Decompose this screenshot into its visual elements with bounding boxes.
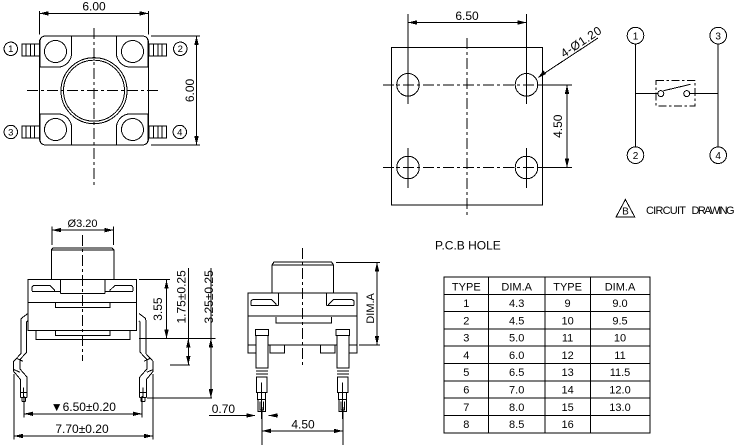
svg-text:2: 2 [178, 44, 183, 55]
svg-text:11.5: 11.5 [610, 367, 631, 379]
svg-text:8: 8 [463, 419, 469, 431]
svg-text:DIM.A: DIM.A [501, 282, 532, 294]
svg-text:7: 7 [463, 402, 469, 414]
svg-text:Ø3.20: Ø3.20 [68, 218, 98, 230]
svg-text:4.5: 4.5 [509, 316, 524, 328]
svg-text:3.25±0.25: 3.25±0.25 [202, 270, 216, 324]
svg-text:4.3: 4.3 [509, 298, 524, 310]
svg-text:12.0: 12.0 [609, 385, 630, 397]
svg-text:6.00: 6.00 [183, 78, 197, 102]
svg-text:3: 3 [463, 333, 469, 345]
svg-text:3: 3 [8, 127, 13, 138]
svg-text:4: 4 [715, 151, 721, 162]
svg-text:▼6.50±0.20: ▼6.50±0.20 [51, 400, 117, 414]
svg-text:5.0: 5.0 [509, 333, 524, 345]
svg-text:4-Ø1.20: 4-Ø1.20 [558, 23, 604, 60]
svg-text:10: 10 [614, 333, 626, 345]
svg-text:7.0: 7.0 [509, 385, 524, 397]
svg-text:2: 2 [633, 151, 639, 162]
svg-text:7.70±0.20: 7.70±0.20 [55, 422, 109, 436]
svg-text:1: 1 [8, 44, 13, 55]
svg-text:4: 4 [463, 350, 469, 362]
svg-text:13: 13 [561, 367, 573, 379]
svg-text:DIM.A: DIM.A [365, 292, 377, 323]
svg-text:1: 1 [463, 298, 469, 310]
svg-text:6.0: 6.0 [509, 350, 524, 362]
svg-text:6: 6 [463, 385, 469, 397]
svg-text:9.5: 9.5 [612, 316, 627, 328]
svg-text:TYPE: TYPE [553, 282, 582, 294]
svg-text:9: 9 [565, 298, 571, 310]
svg-text:14: 14 [561, 385, 573, 397]
svg-text:B: B [622, 207, 629, 218]
svg-text:11: 11 [614, 350, 625, 362]
svg-text:6.5: 6.5 [509, 367, 524, 379]
svg-text:4.50: 4.50 [551, 114, 565, 138]
svg-text:12: 12 [561, 350, 573, 362]
svg-text:8.0: 8.0 [509, 402, 524, 414]
svg-text:9.0: 9.0 [612, 298, 627, 310]
svg-text:3: 3 [715, 31, 721, 42]
svg-text:3.55: 3.55 [151, 297, 165, 321]
svg-text:1.75±0.25: 1.75±0.25 [174, 270, 188, 324]
svg-text:4.50: 4.50 [291, 418, 315, 432]
svg-text:TYPE: TYPE [452, 282, 481, 294]
svg-text:DRAWING: DRAWING [692, 205, 735, 217]
svg-text:4: 4 [177, 127, 182, 138]
svg-text:16: 16 [561, 419, 573, 431]
svg-text:P.C.B HOLE: P.C.B HOLE [435, 239, 501, 253]
svg-text:11: 11 [562, 333, 573, 345]
svg-text:CIRCUIT: CIRCUIT [646, 205, 686, 217]
svg-text:DIM.A: DIM.A [605, 282, 636, 294]
svg-text:0.70: 0.70 [212, 402, 236, 416]
svg-text:5: 5 [463, 367, 469, 379]
svg-text:6.50: 6.50 [455, 9, 479, 23]
svg-text:8.5: 8.5 [509, 419, 524, 431]
svg-text:2: 2 [463, 316, 469, 328]
svg-text:1: 1 [633, 31, 639, 42]
svg-text:6.00: 6.00 [82, 0, 106, 14]
svg-text:15: 15 [561, 402, 573, 414]
svg-text:10: 10 [561, 316, 573, 328]
svg-text:13.0: 13.0 [609, 402, 630, 414]
